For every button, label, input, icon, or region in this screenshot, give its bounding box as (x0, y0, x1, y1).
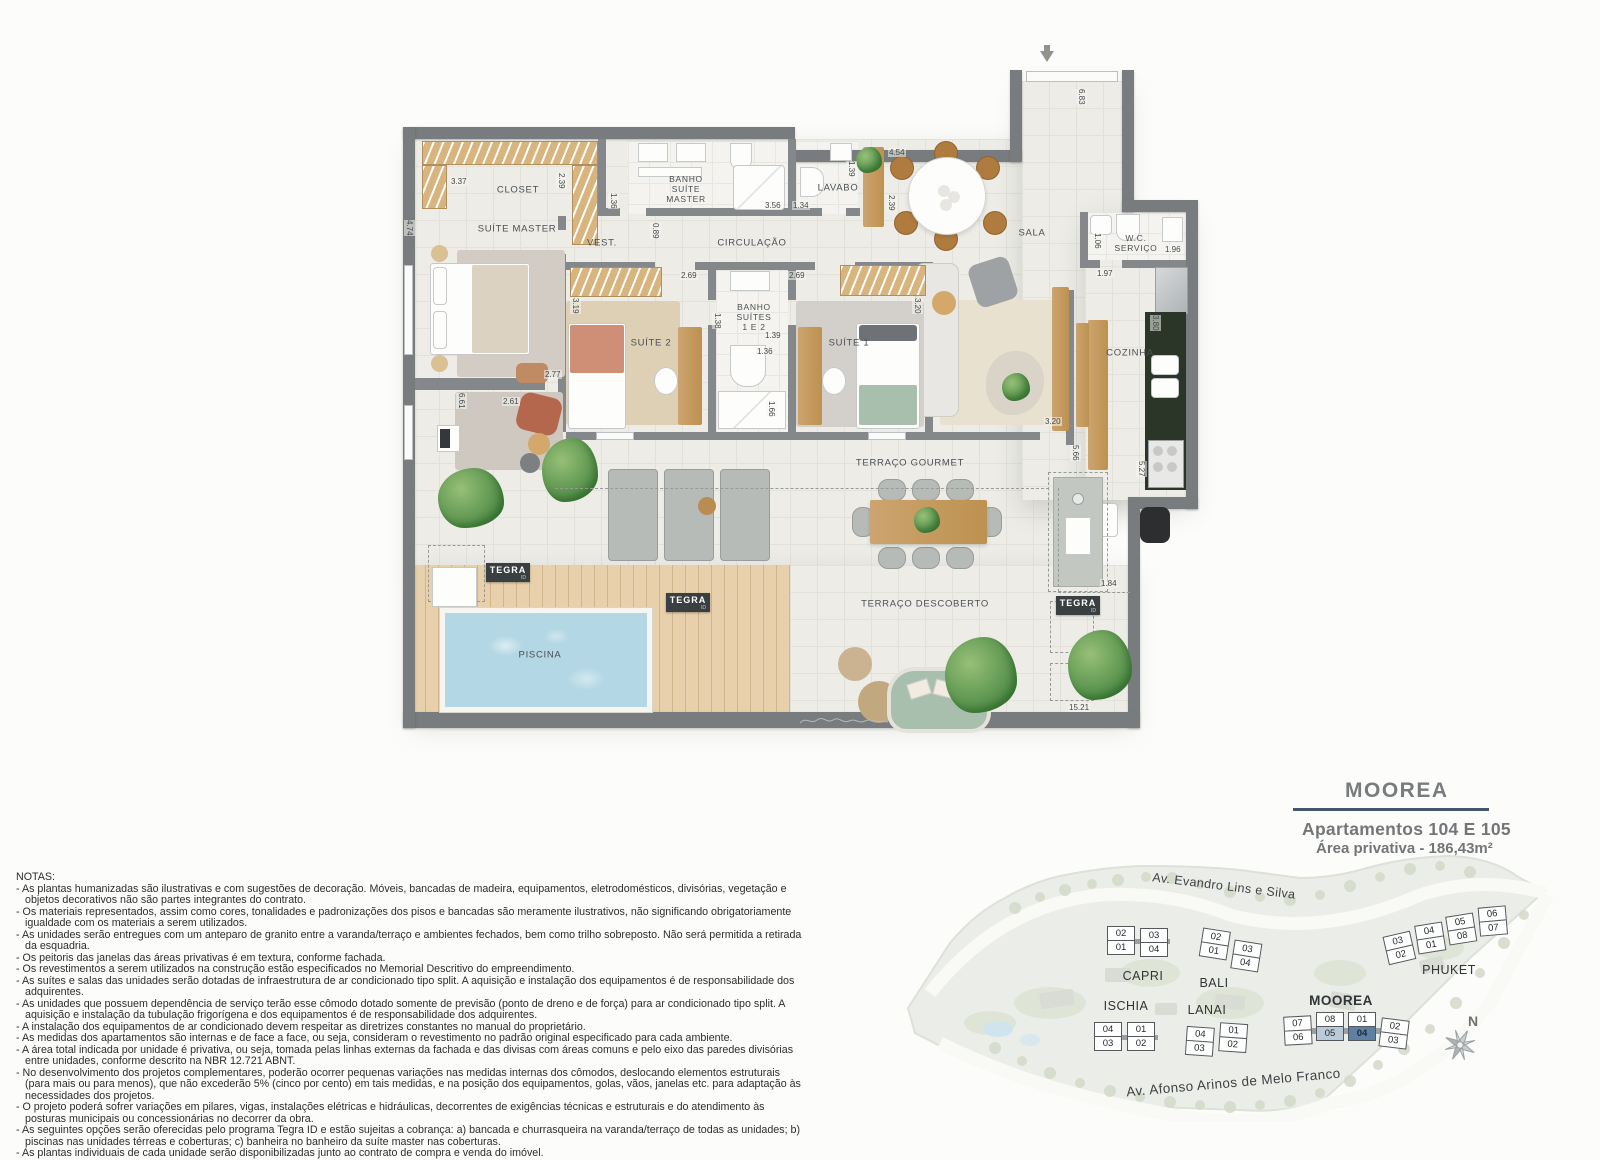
closet-wardrobe-left (422, 165, 447, 209)
dim-2-61: 2.61 (502, 397, 520, 406)
gourmet-chair-4 (878, 547, 906, 569)
unit-cell-104-highlight: 04 (1348, 1026, 1376, 1041)
wall-wing-top (1122, 200, 1198, 212)
closet-wardrobe-top (422, 141, 598, 165)
projection-line-h (555, 488, 1049, 489)
laundry-tank (1162, 217, 1183, 242)
unit-cell: 02 (1107, 926, 1135, 941)
notes-block: NOTAS: - As plantas humanizadas são ilus… (16, 872, 804, 1160)
entry-threshold (1026, 71, 1118, 82)
wall-corridor-wc (1080, 212, 1088, 268)
building-moorea: 0706 0805 0104 0203 (1284, 1011, 1408, 1048)
dim-5-27: 5.27 (1136, 461, 1147, 477)
gourmet-chair-5 (912, 547, 940, 569)
lounger-2 (664, 469, 714, 561)
island-faucet (1072, 493, 1084, 505)
site-map: Av. Evandro Lins e Silva Av. Afonso Arin… (900, 853, 1570, 1121)
dim-1-38: 1.38 (712, 313, 723, 329)
side-stool (932, 291, 956, 315)
room-label-banho-master: BANHO SUÍTE MASTER (666, 174, 706, 204)
tegra-badge-3: TEGRAID (1056, 596, 1100, 615)
table-plates (938, 185, 950, 197)
note-line: - As unidades serão entregues com um ant… (16, 930, 804, 953)
room-label-banho-suites: BANHO SUÍTES 1 E 2 (737, 302, 772, 332)
unit-cell: 03 (1378, 1031, 1408, 1049)
dim-2-69-a: 2.69 (680, 271, 698, 280)
unit-cell: 04 (1094, 1022, 1122, 1037)
dim-1-66: 1.66 (766, 401, 777, 417)
architect-signature (798, 715, 890, 727)
lounger-1 (608, 469, 658, 561)
wall-banho-suites-right-b (788, 325, 796, 432)
room-label-wc-servico: W.C. SERVIÇO (1114, 233, 1157, 253)
room-label-circulacao: CIRCULAÇÃO (717, 237, 786, 248)
dim-3-20-suite1: 3.20 (912, 298, 923, 314)
kitchen-sink-double (1151, 355, 1179, 375)
projection-line-h2 (1058, 592, 1130, 593)
room-label-suite-master: SUÍTE MASTER (478, 223, 557, 234)
room-label-cozinha: COZINHA (1106, 347, 1154, 358)
suite1-desk (798, 327, 822, 425)
wall-closet-banho (598, 139, 606, 216)
dining-chair-6 (890, 156, 914, 180)
dim-1-36-banho: 1.36 (608, 193, 619, 209)
glass-door-2 (868, 432, 906, 440)
dim-6-83: 6.83 (1076, 89, 1087, 105)
wall-bottom (403, 712, 1140, 728)
project-title: MOOREA (1345, 779, 1449, 803)
note-line: - As unidades que possuem dependência de… (16, 999, 804, 1022)
dim-2-77: 2.77 (544, 370, 562, 379)
dim-4-74: 4.74 (404, 220, 415, 236)
dim-1-97: 1.97 (1096, 269, 1114, 278)
nook-tv (440, 429, 450, 448)
dim-15-21: 15.21 (1068, 703, 1090, 712)
dim-3-56: 3.56 (764, 201, 782, 210)
wall-right-lower (1128, 509, 1140, 728)
notes-heading: NOTAS: (16, 872, 804, 884)
plant-bush-1 (438, 468, 504, 528)
building-capri: 0201 0304 (1107, 927, 1168, 957)
note-line: - As seguintes opções serão oferecidas p… (16, 1125, 804, 1148)
building-lanai-label: LANAI (1188, 1003, 1227, 1017)
kitchen-sink-double-2 (1151, 378, 1179, 398)
gourmet-chair-1 (878, 479, 906, 501)
dim-5-66: 5.66 (1070, 445, 1081, 461)
room-label-suite2: SUÍTE 2 (631, 337, 672, 348)
bbq-counter (432, 567, 477, 607)
note-line: - As medidas dos apartamentos são intern… (16, 1033, 804, 1045)
unit-cell: 04 (1140, 942, 1168, 957)
unit-cell: 03 (1094, 1036, 1122, 1051)
suite2-blanket (570, 325, 624, 373)
gourmet-chair-2 (912, 479, 940, 501)
entrance-arrow (1040, 51, 1054, 62)
unit-cell: 08 (1316, 1012, 1344, 1027)
nightstand-1 (431, 245, 448, 262)
window-suite-master (404, 265, 413, 355)
plant-bush-2 (542, 438, 598, 502)
room-label-terraco-gourmet: TERRAÇO GOURMET (856, 457, 964, 468)
unit-cell: 03 (1185, 1040, 1214, 1057)
suite2-desk (678, 327, 702, 425)
room-label-suite1: SUÍTE 1 (829, 337, 870, 348)
unit-cell: 07 (1479, 919, 1508, 936)
building-capri-label: CAPRI (1123, 969, 1164, 983)
dim-2-39-sala: 2.39 (886, 195, 897, 211)
unit-cell: 08 (1447, 926, 1477, 945)
closet-wardrobe-right (572, 165, 598, 245)
suite-master-pillow-1 (433, 267, 447, 305)
glass-door-1 (596, 432, 634, 440)
apartments-subtitle: Apartamentos 104 E 105 (1302, 819, 1511, 840)
unit-cell: 03 (1140, 928, 1168, 943)
lounger-side-table (698, 497, 716, 515)
room-label-lavabo: LAVABO (818, 182, 859, 193)
unit-cell: 02 (1127, 1036, 1155, 1051)
building-ischia: 0403 0102 (1094, 1023, 1155, 1051)
building-lanai: 0403 0102 (1185, 1021, 1248, 1059)
room-label-vest: VEST. (587, 237, 617, 248)
note-line: - O projeto poderá sofrer variações em p… (16, 1102, 804, 1125)
building-bali-label: BALI (1199, 976, 1228, 990)
oven-black (1140, 507, 1170, 543)
wall-corridor-left (1010, 70, 1022, 162)
dim-1-34: 1.34 (792, 201, 810, 210)
suite2-chair (654, 367, 678, 395)
building-ischia-label: ISCHIA (1104, 999, 1149, 1013)
tegra-badge-1: TEGRAID (486, 563, 530, 582)
note-line: - As suítes e salas das unidades serão d… (16, 976, 804, 999)
coffee-table-plant (1002, 373, 1030, 401)
dim-1-96: 1.96 (1164, 245, 1182, 254)
stove-burners (1153, 446, 1163, 456)
outdoor-pouf-1 (838, 647, 872, 681)
note-line: - Os revestimentos a serem utilizados na… (16, 964, 804, 976)
sideboard-plant (856, 147, 882, 173)
note-line: - As plantas humanizadas são ilustrativa… (16, 884, 804, 907)
note-line: - As plantas individuais de cada unidade… (16, 1148, 804, 1160)
suite1-wardrobe (840, 265, 926, 296)
dim-4-54: 4.54 (888, 148, 906, 157)
wall-banho-suites-left-b (708, 325, 716, 432)
lavabo-sink (830, 143, 852, 161)
dining-chair-3 (983, 211, 1007, 235)
banho-master-sink-1 (638, 143, 668, 162)
nightstand-2 (431, 355, 448, 372)
wc-sink (1090, 215, 1112, 235)
dim-3-80: 3.80 (1150, 315, 1161, 331)
dim-6-61: 6.61 (456, 393, 467, 409)
dim-3-37: 3.37 (450, 177, 468, 186)
unit-cell: 01 (1416, 935, 1446, 954)
unit-cell: 01 (1199, 941, 1229, 960)
island-sink (1065, 517, 1091, 555)
wall-banho-suites-left (708, 270, 716, 300)
tegra-badge-2: TEGRAID (666, 593, 710, 612)
suite2-wardrobe (570, 267, 662, 297)
entrance-arrow-stem (1044, 45, 1050, 51)
suite-master-pillow-2 (433, 311, 447, 349)
gourmet-chair-6 (946, 547, 974, 569)
note-line: - No desenvolvimento dos projetos comple… (16, 1068, 804, 1103)
banho-suites-sink (730, 271, 770, 291)
lounger-3 (720, 469, 770, 561)
gourmet-chair-3 (946, 479, 974, 501)
wall-lavabo-bottom-b (846, 208, 860, 216)
wall-top (403, 127, 795, 139)
dim-2-39-closet: 2.39 (556, 173, 567, 189)
bar-counter (1076, 323, 1089, 427)
dim-2-69-b: 2.69 (788, 271, 806, 280)
wall-circulacao-b (695, 262, 815, 270)
dim-1-39-lavabo: 1.39 (846, 161, 857, 177)
dim-1-36-banho-suites: 1.36 (756, 347, 774, 356)
suite1-chair (822, 367, 846, 395)
unit-cell: 06 (1284, 1029, 1313, 1045)
terrace-tree-2 (1068, 630, 1132, 700)
note-line: - A área total indicada por unidade é pr… (16, 1045, 804, 1068)
compass-rose-icon (1442, 1027, 1478, 1063)
dim-3-19: 3.19 (570, 298, 581, 314)
nook-pouf (520, 453, 540, 473)
glass-wall (566, 432, 1040, 440)
unit-cell: 01 (1127, 1022, 1155, 1037)
wall-wing-right (1186, 212, 1198, 509)
title-divider (1293, 808, 1489, 811)
wall-corridor-right (1122, 70, 1134, 212)
suite1-blanket (859, 385, 917, 425)
projection-line-v (1058, 488, 1059, 592)
dim-1-06: 1.06 (1092, 233, 1103, 249)
wall-banho-master-bottom-a (606, 208, 620, 216)
dim-0-89: 0.89 (650, 223, 661, 239)
dim-1-39-banho-suites: 1.39 (764, 331, 782, 340)
terrace-tree-1 (945, 637, 1017, 713)
building-moorea-label: MOOREA (1309, 993, 1373, 1008)
room-label-piscina: PISCINA (519, 649, 562, 660)
room-label-terraco-descoberto: TERRAÇO DESCOBERTO (861, 598, 989, 609)
window-nook (404, 405, 413, 460)
unit-cell: 02 (1218, 1036, 1247, 1053)
dim-3-20-cozinha: 3.20 (1044, 417, 1062, 426)
floor-plan: TEGRAID TEGRAID TEGRAID CLOSET SUÍTE MAS… (400, 55, 1210, 745)
banho-master-sink-2 (676, 143, 706, 162)
wall-suite-master-right (558, 216, 566, 230)
room-label-sala: SALA (1018, 227, 1045, 238)
gourmet-table-plant (914, 507, 940, 533)
kitchen-bench (1088, 320, 1108, 470)
tv-cabinet (1052, 287, 1069, 431)
note-line: - Os materiais representados, assim como… (16, 907, 804, 930)
suite-master-blanket (472, 265, 528, 353)
building-phuket-label: PHUKET (1422, 963, 1476, 977)
unit-cell-105-highlight: 05 (1316, 1026, 1344, 1041)
room-label-closet: CLOSET (497, 184, 539, 195)
unit-cell: 01 (1348, 1012, 1376, 1027)
unit-cell: 01 (1107, 940, 1135, 955)
dim-1-84: 1.84 (1100, 579, 1118, 588)
fridge (1155, 267, 1188, 314)
